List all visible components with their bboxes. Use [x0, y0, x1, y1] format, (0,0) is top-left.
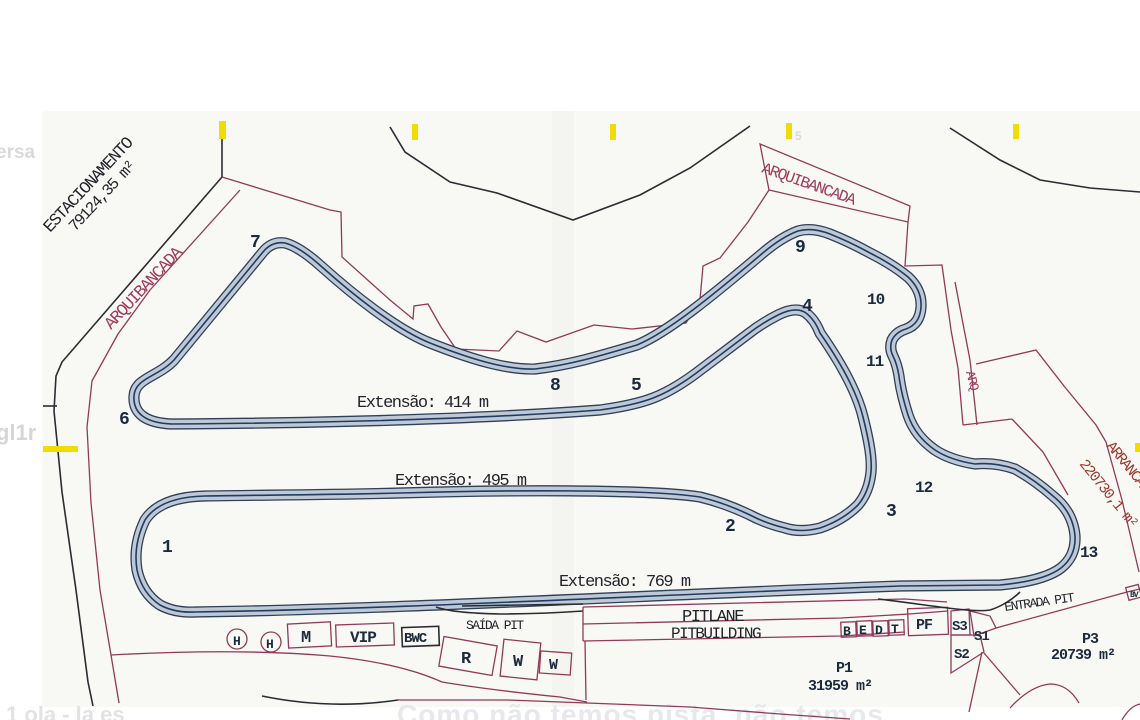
svg-text:13: 13 — [1080, 544, 1098, 562]
svg-text:M: M — [301, 629, 311, 648]
svg-text:1: 1 — [162, 538, 173, 558]
svg-text:4: 4 — [802, 297, 813, 317]
svg-text:3: 3 — [886, 502, 896, 522]
svg-text:S1: S1 — [974, 629, 989, 645]
svg-text:BWC: BWC — [404, 631, 428, 647]
svg-text:PF: PF — [916, 617, 933, 634]
svg-text:B: B — [843, 624, 851, 639]
svg-text:S3: S3 — [952, 619, 967, 635]
svg-text:VIP: VIP — [350, 629, 376, 647]
svg-text:Extensão: 769 m: Extensão: 769 m — [559, 573, 691, 592]
svg-text:H: H — [233, 634, 240, 649]
svg-text:9: 9 — [795, 238, 805, 258]
svg-text:7: 7 — [250, 233, 260, 253]
svg-text:10: 10 — [867, 291, 885, 309]
svg-text:D: D — [875, 623, 883, 638]
svg-text:6: 6 — [119, 410, 129, 430]
svg-text:Extensão: 495 m: Extensão: 495 m — [395, 472, 527, 491]
svg-text:H: H — [266, 637, 273, 652]
svg-text:8: 8 — [550, 376, 560, 396]
svg-text:BV: BV — [1130, 591, 1139, 600]
svg-text:5: 5 — [631, 376, 641, 396]
svg-text:SAÍDA PIT: SAÍDA PIT — [466, 618, 524, 633]
svg-text:E: E — [859, 623, 867, 638]
svg-text:S2: S2 — [954, 647, 969, 663]
svg-text:12: 12 — [915, 479, 933, 497]
svg-text:11: 11 — [866, 353, 884, 371]
svg-text:P3: P3 — [1082, 631, 1099, 648]
svg-text:31959 m²: 31959 m² — [808, 678, 872, 695]
svg-text:1 ola - la es: 1 ola - la es — [6, 702, 125, 720]
svg-text:PITBUILDING: PITBUILDING — [671, 625, 761, 643]
svg-text:T: T — [891, 622, 899, 637]
svg-text:gl1r: gl1r — [0, 420, 37, 445]
svg-text:W: W — [549, 657, 558, 674]
svg-text:20739 m²: 20739 m² — [1051, 647, 1115, 664]
svg-text:2: 2 — [725, 517, 735, 537]
svg-text:Extensão: 414 m: Extensão: 414 m — [357, 394, 489, 413]
svg-text:5: 5 — [795, 129, 802, 143]
svg-text:P1: P1 — [836, 660, 853, 677]
svg-text:ersa: ersa — [0, 142, 36, 163]
